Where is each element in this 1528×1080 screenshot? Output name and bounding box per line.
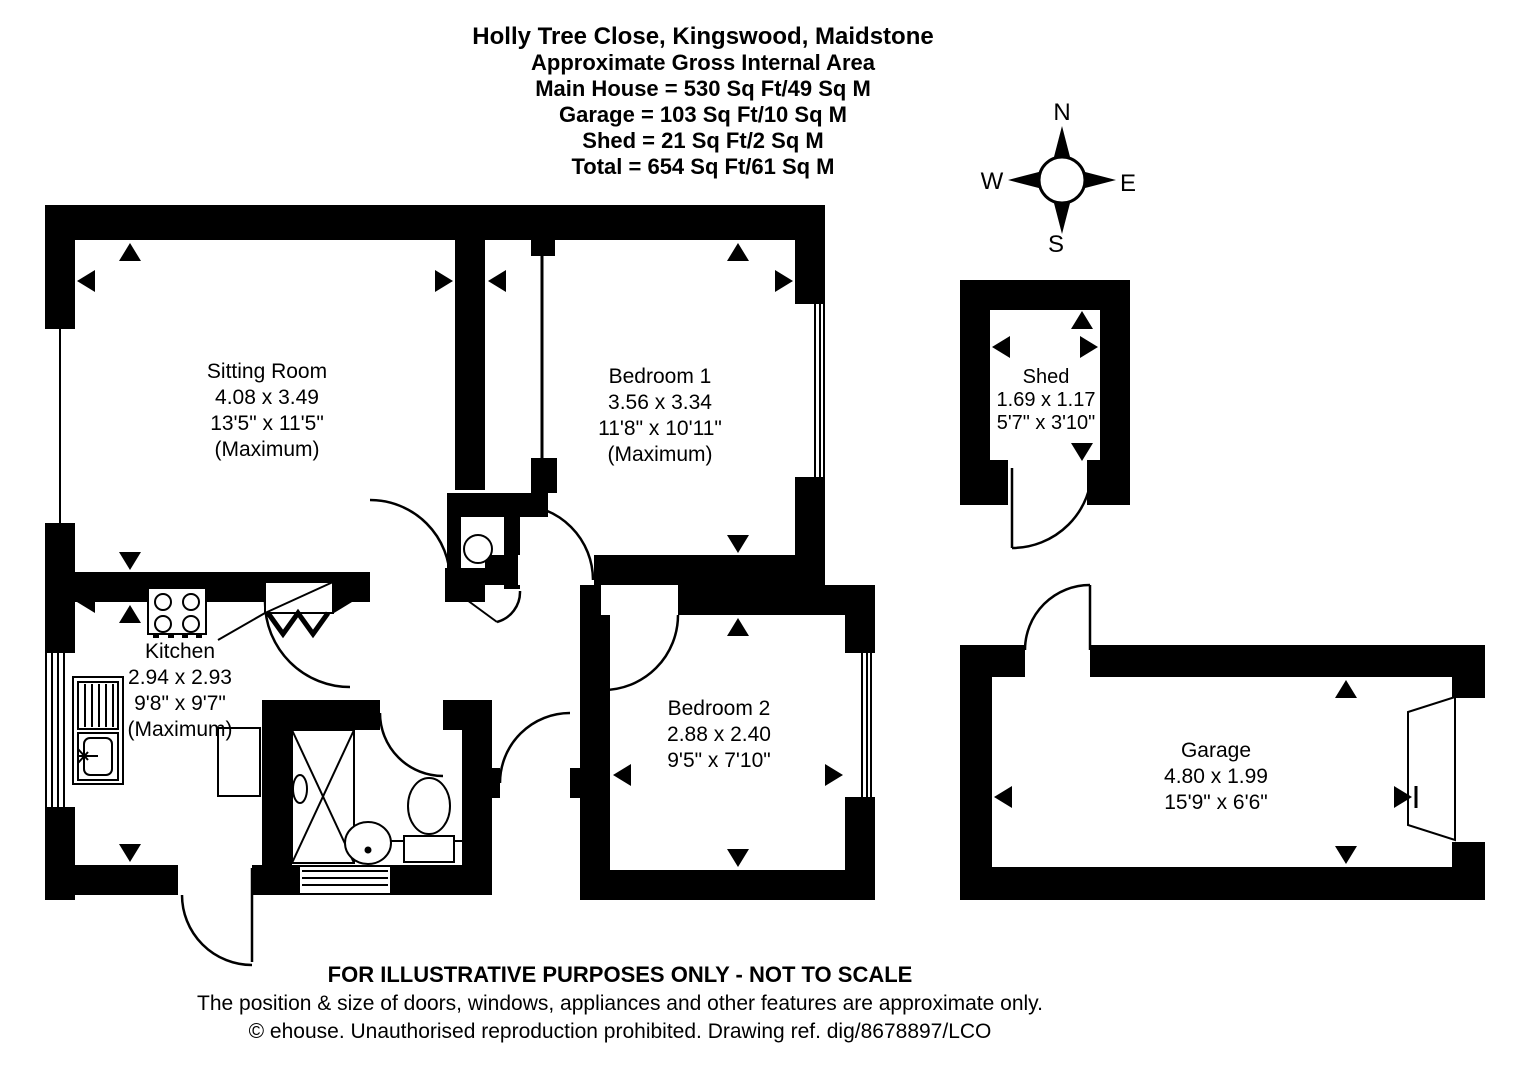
kitchen-metric: 2.94 x 2.93 [128,666,232,689]
title-block: Holly Tree Close, Kingswood, Maidstone A… [472,23,933,179]
sitting-room-imperial: 13'5" x 11'5" [210,412,324,435]
garage-door-panel [1408,697,1455,840]
window-kitchen [45,652,75,808]
wall-top [45,205,825,240]
area-total: Total = 654 Sq Ft/61 Sq M [571,154,834,179]
shed-name: Shed [1023,366,1070,388]
wall-bedroom2-left [580,615,610,900]
compass-n-label: N [1053,99,1070,126]
window-bathroom [300,867,390,893]
closet-door-arc [497,591,520,622]
basin-icon [345,822,391,864]
shed-imperial: 5'7" x 3'10" [997,412,1096,434]
floorplan-svg: Holly Tree Close, Kingswood, Maidstone A… [0,0,1528,1080]
bedroom1-imperial: 11'8" x 10'11" [598,417,722,440]
compass-e-label: E [1120,170,1136,197]
main-house: Sitting Room 4.08 x 3.49 13'5" x 11'5" (… [45,205,875,965]
partition-stub-top [531,240,555,256]
label-bedroom2: Bedroom 2 2.88 x 2.40 9'5" x 7'10" [667,697,771,772]
garage-imperial: 15'9" x 6'6" [1164,791,1268,814]
door-arc-kitchen-hall [265,602,350,687]
bedroom2-metric: 2.88 x 2.40 [667,723,771,746]
wall-bathroom-top [262,700,492,730]
door-gap-bedroom2 [601,585,678,615]
shed-door-gap [1008,460,1087,505]
bedroom2-name: Bedroom 2 [668,697,771,720]
wall-cupboard-bottom [447,493,548,517]
footer-disclaimer-detail: The position & size of doors, windows, a… [197,992,1043,1015]
water-tank-icon [464,535,492,563]
dim-arrows-bedroom1 [727,243,793,553]
label-kitchen: Kitchen 2.94 x 2.93 9'8" x 9'7" (Maximum… [128,640,233,741]
compass-circle [1039,157,1085,203]
toilet-icon [404,778,454,862]
footer-disclaimer-title: FOR ILLUSTRATIVE PURPOSES ONLY - NOT TO … [328,962,913,987]
door-gap-kitchen-exterior [178,865,252,895]
footer-block: FOR ILLUSTRATIVE PURPOSES ONLY - NOT TO … [197,962,1043,1043]
bedroom1-metric: 3.56 x 3.34 [608,391,712,414]
sitting-room-note: (Maximum) [215,438,320,461]
compass-s-label: S [1048,231,1064,258]
label-sitting-room: Sitting Room 4.08 x 3.49 13'5" x 11'5" (… [207,360,327,461]
kitchen-name: Kitchen [145,640,215,663]
door-garage-side [1025,585,1090,650]
door-gap-bedroom1 [518,555,594,585]
area-shed: Shed = 21 Sq Ft/2 Sq M [582,128,823,153]
bedroom1-name: Bedroom 1 [609,365,712,388]
garage: Garage 4.80 x 1.99 15'9" x 6'6" [960,585,1485,900]
kitchen-sink-icon [73,677,123,784]
garage-name: Garage [1181,739,1251,762]
bedroom1-note: (Maximum) [608,443,713,466]
compass-rose: N W E S [981,99,1136,258]
window-bedroom2 [845,652,875,798]
kitchen-note: (Maximum) [128,718,233,741]
window-sitting-room [45,328,75,524]
label-bedroom1: Bedroom 1 3.56 x 3.34 11'8" x 10'11" (Ma… [598,365,722,466]
door-gap-bathroom [380,700,443,730]
wall-bathroom-left [262,700,292,895]
kitchen-imperial: 9'8" x 9'7" [134,692,226,715]
bedroom2-imperial: 9'5" x 7'10" [667,749,771,772]
floorplan-page: Holly Tree Close, Kingswood, Maidstone A… [0,0,1528,1080]
window-bedroom1 [795,303,825,478]
door-arc-sitting-room [370,500,450,580]
shed: Shed 1.69 x 1.17 5'7" x 3'10" [960,280,1130,548]
door-gap-front [500,768,570,798]
wall-sitting-cupboard [455,240,485,490]
wall-bathroom-right [462,700,492,895]
garage-metric: 4.80 x 1.99 [1164,765,1268,788]
sitting-room-name: Sitting Room [207,360,327,383]
closet-wall-right [504,517,520,589]
area-main-house: Main House = 530 Sq Ft/49 Sq M [535,76,871,101]
hob-icon [148,588,206,638]
sitting-room-metric: 4.08 x 3.49 [215,386,319,409]
shed-metric: 1.69 x 1.17 [997,389,1096,411]
compass-w-label: W [981,168,1004,195]
plan-title: Holly Tree Close, Kingswood, Maidstone [472,23,933,50]
garage-side-door-gap [1025,645,1090,677]
area-garage: Garage = 103 Sq Ft/10 Sq M [559,102,847,127]
partition-stub-bottom [531,458,557,493]
plan-subtitle: Approximate Gross Internal Area [531,50,876,75]
wall-bedroom2-bottom [580,870,875,900]
door-arc-bedroom2 [603,615,678,690]
footer-copyright: © ehouse. Unauthorised reproduction proh… [249,1020,992,1043]
